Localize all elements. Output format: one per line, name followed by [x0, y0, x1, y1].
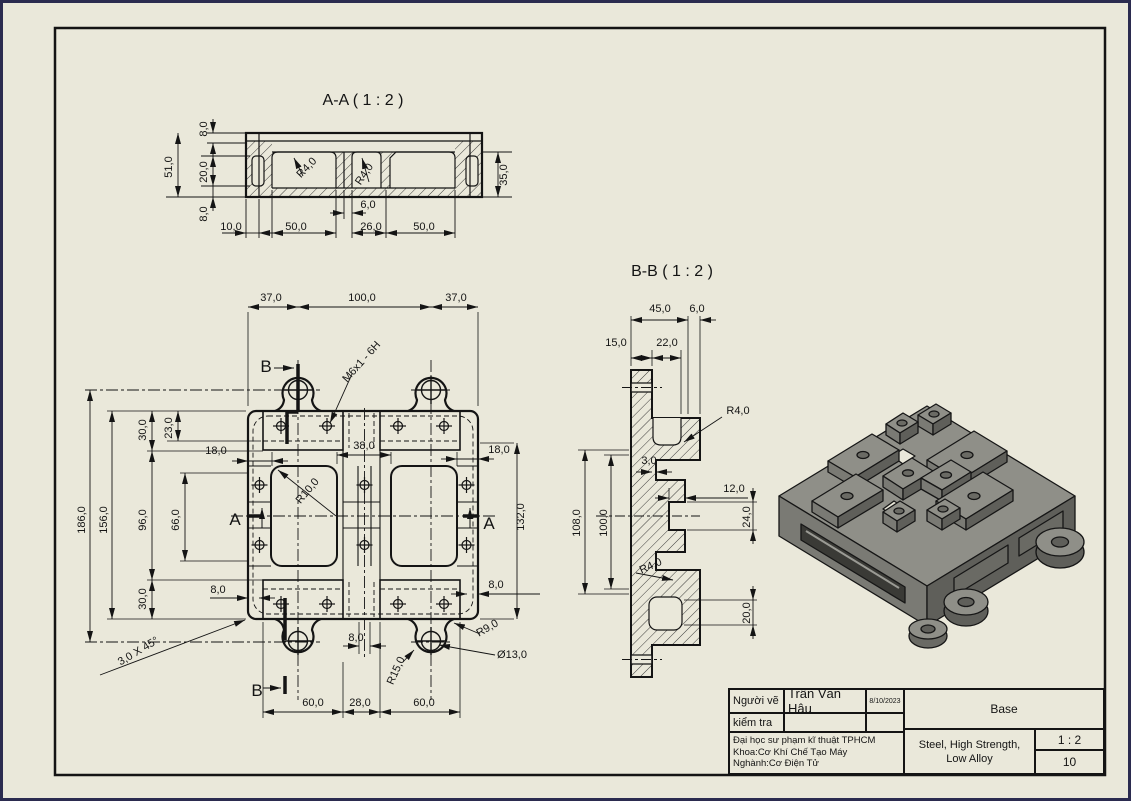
dimension-text: M6x1 - 6H [340, 339, 383, 385]
main-view [85, 307, 540, 718]
dimension-text: 8,0 [198, 206, 210, 221]
dimension-text: 12,0 [723, 483, 744, 495]
drawing-canvas: A-A ( 1 : 2 )8,051,020,08,035,0R4,0R4,06… [0, 0, 1131, 801]
org-line-3: Nghành:Cơ Điện Tử [733, 758, 903, 770]
dimension-text: 37,0 [445, 292, 466, 304]
dimension-text: Ø13,0 [497, 649, 527, 661]
dimension-text: 100,0 [348, 292, 376, 304]
dimension-text: 38,0 [353, 440, 374, 452]
dimension-text: 26,0 [360, 221, 381, 233]
dimension-text: A [229, 510, 241, 529]
part-name: Base [905, 690, 1103, 730]
dimension-text: 100,0 [598, 509, 610, 537]
dimension-text: 20,0 [198, 161, 210, 182]
dimension-text: B [260, 357, 271, 376]
checked-value [785, 714, 867, 733]
dimension-text: R15,0 [385, 655, 408, 687]
dimension-text: 8,0 [348, 632, 363, 644]
dimension-text: 37,0 [260, 292, 281, 304]
dimension-text: A [483, 514, 495, 533]
dimension-text: R4,0 [726, 405, 749, 417]
dimension-text: 30,0 [137, 588, 149, 609]
dimension-text: B-B ( 1 : 2 ) [631, 263, 713, 280]
drawn-by-label: Người vẽ [730, 690, 785, 714]
dimension-text: 23,0 [163, 417, 175, 438]
dimension-text: 20,0 [741, 602, 753, 623]
dimension-text: 156,0 [98, 506, 110, 534]
drawn-by-value: Trần Văn Hậu [785, 690, 867, 714]
dimension-text: 8,0 [488, 579, 503, 591]
drawing-sheet: { "sheet": { "background_color": "#eae8d… [0, 0, 1131, 801]
dimension-text: 96,0 [137, 509, 149, 530]
checked-label: kiểm tra [730, 714, 785, 733]
scale-value: 1 : 2 [1036, 730, 1103, 751]
dimension-text: 28,0 [349, 697, 370, 709]
dimension-text: 186,0 [76, 506, 88, 534]
dimension-text: 3,0 X 45° [116, 635, 161, 669]
dimension-text: B [251, 681, 262, 700]
dimension-lines [90, 307, 540, 712]
title-block: Người vẽ Trần Văn Hậu 8/10/2023 kiểm tra… [728, 688, 1105, 775]
section-aa-view [166, 119, 512, 238]
org-line-2: Khoa:Cơ Khí Chế Tạo Máy [733, 747, 903, 759]
dimension-text: 24,0 [741, 506, 753, 527]
extension-lines [107, 312, 514, 718]
dimension-text: 8,0 [198, 121, 210, 136]
dimension-text: 18,0 [488, 444, 509, 456]
dimension-text: 66,0 [170, 509, 182, 530]
dimension-text: R9,0 [474, 617, 500, 639]
iso-pads [812, 404, 1013, 532]
dimension-text: 30,0 [137, 419, 149, 440]
dimension-text: 3,0 [641, 455, 656, 467]
dimension-text: 15,0 [605, 337, 626, 349]
dimension-text: 18,0 [205, 445, 226, 457]
dimension-text: 132,0 [515, 503, 527, 531]
dimension-text: A-A ( 1 : 2 ) [323, 92, 404, 109]
org-line-1: Đại học sư phạm kĩ thuật TPHCM [733, 735, 903, 747]
dimension-text: 35,0 [498, 164, 510, 185]
dimension-text: 60,0 [413, 697, 434, 709]
dimension-text: 108,0 [571, 509, 583, 537]
dimension-text: 10,0 [220, 221, 241, 233]
dimension-text: 60,0 [302, 697, 323, 709]
sheet-frame [55, 28, 1105, 775]
sheet-number: 10 [1036, 751, 1103, 773]
dimension-text: 8,0 [210, 584, 225, 596]
dimension-text: 50,0 [413, 221, 434, 233]
organization-cell: Đại học sư phạm kĩ thuật TPHCM Khoa:Cơ K… [730, 733, 905, 773]
bb-outline [631, 370, 700, 677]
section-bb-view [578, 316, 757, 677]
dimension-text: 45,0 [649, 303, 670, 315]
iso-view [779, 404, 1084, 648]
dimension-text: 6,0 [360, 199, 375, 211]
dimension-text: 22,0 [656, 337, 677, 349]
interior-lines [248, 450, 478, 580]
dimension-text: 6,0 [689, 303, 704, 315]
date-value: 8/10/2023 [867, 690, 905, 714]
material-cell: Steel, High Strength, Low Alloy [905, 730, 1036, 773]
dimension-text: 50,0 [285, 221, 306, 233]
dimension-text: 51,0 [163, 156, 175, 177]
